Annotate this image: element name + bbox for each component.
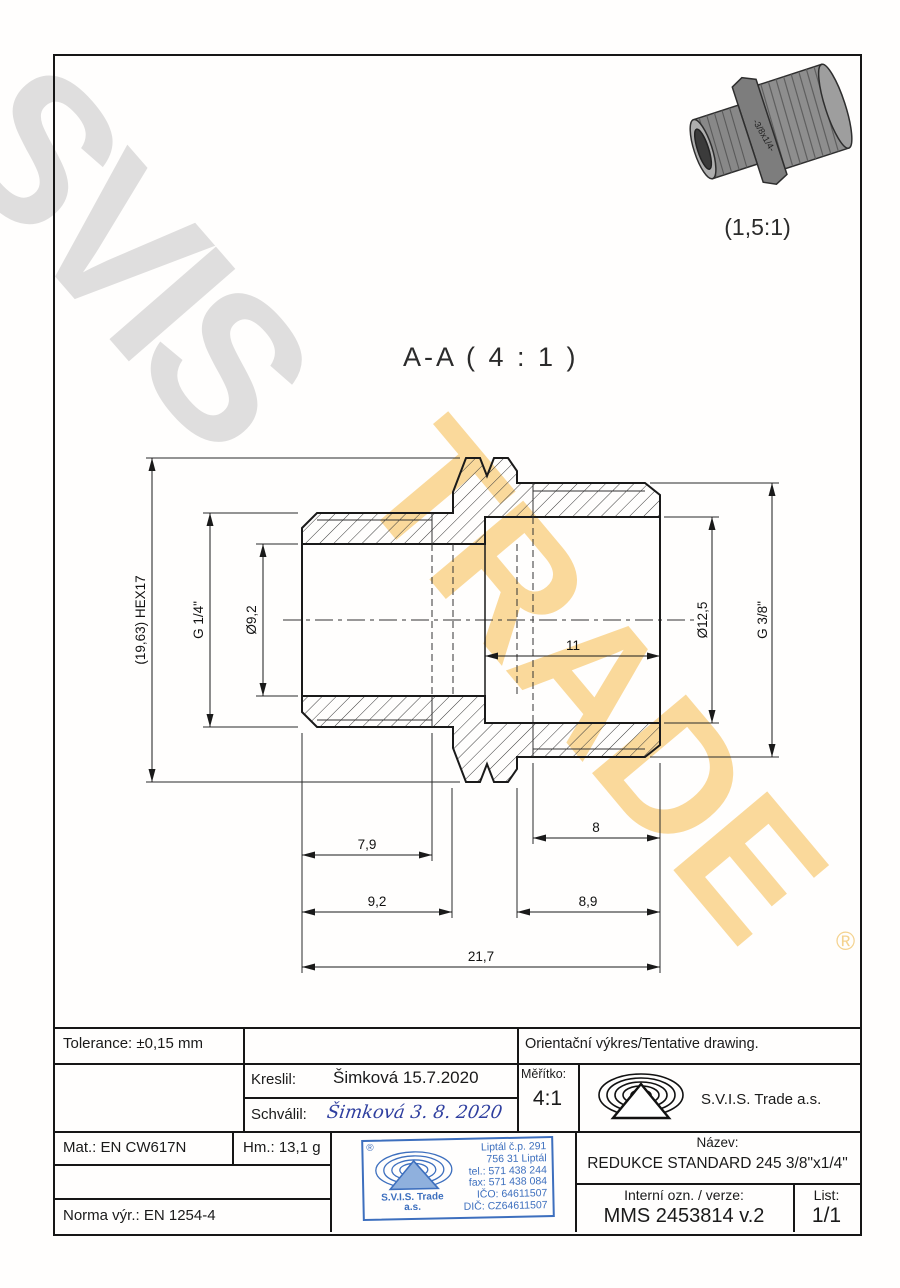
stamp-line: DIČ: CZ64611507 xyxy=(447,1200,547,1214)
company-stamp: ® S.V.I.S. Trade a.s. Liptál č.p. 291 75… xyxy=(361,1136,555,1221)
schvalil-signature: Šimková 3. 8. 2020 xyxy=(326,1102,504,1123)
company-logo-icon xyxy=(593,1069,689,1125)
dim-depth-right: 11 xyxy=(566,638,580,653)
section-view: (19,63) HEX17 G 1/4" Ø9,2 Ø12,5 G 3/8" 1… xyxy=(85,425,805,1000)
dim-thread-left: G 1/4" xyxy=(191,601,206,639)
dim-thread-len-right: 8 xyxy=(592,820,600,835)
company-name: S.V.I.S. Trade a.s. xyxy=(701,1091,821,1108)
interni-label: Interní ozn. / verze: xyxy=(575,1187,793,1203)
list-value: 1/1 xyxy=(793,1204,860,1228)
dim-hex: (19,63) HEX17 xyxy=(133,575,148,664)
nazev-label: Název: xyxy=(575,1135,860,1150)
tentative-note: Orientační výkres/Tentative drawing. xyxy=(525,1036,759,1052)
dim-thread-right: G 3/8" xyxy=(755,601,770,639)
stamp-company-name: S.V.I.S. Trade a.s. xyxy=(370,1192,454,1214)
part-3d-photo: -3/8x1/4- xyxy=(658,48,858,216)
interni-value: MMS 2453814 v.2 xyxy=(575,1205,793,1228)
stamp-address: Liptál č.p. 291 756 31 Liptál tel.: 571 … xyxy=(446,1141,547,1214)
kreslil-label: Kreslil: xyxy=(251,1071,296,1088)
kreslil-value: Šimková 15.7.2020 xyxy=(333,1068,479,1088)
dim-bore-right: Ø12,5 xyxy=(695,602,710,639)
title-block: Tolerance: ±0,15 mm Orientační výkres/Te… xyxy=(53,1027,860,1232)
schvalil-label: Schválil: xyxy=(251,1106,307,1123)
drawing-page: SVIS TRADE ® -3/8x1/4- xyxy=(0,0,900,1288)
meritko-value: 4:1 xyxy=(517,1087,578,1111)
list-label: List: xyxy=(793,1187,860,1203)
meritko-label: Měřítko: xyxy=(521,1067,566,1081)
dim-total-len: 21,7 xyxy=(468,949,494,964)
dim-seg-right: 8,9 xyxy=(579,894,598,909)
dim-bore-left: Ø9,2 xyxy=(244,605,259,634)
stamp-suffix-line: a.s. xyxy=(404,1202,421,1213)
dim-thread-len-left: 7,9 xyxy=(358,837,377,852)
section-title: A-A ( 4 : 1 ) xyxy=(403,342,579,373)
mass-value: Hm.: 13,1 g xyxy=(243,1139,321,1156)
norm-value: Norma výr.: EN 1254-4 xyxy=(63,1207,216,1224)
material-value: Mat.: EN CW617N xyxy=(63,1139,186,1156)
nazev-value: REDUKCE STANDARD 245 3/8"x1/4" xyxy=(575,1155,860,1173)
dim-seg-left: 9,2 xyxy=(368,894,387,909)
stamp-logo-icon xyxy=(371,1149,456,1193)
tolerance-note: Tolerance: ±0,15 mm xyxy=(63,1035,203,1052)
photo-scale-label: (1,5:1) xyxy=(660,214,855,241)
